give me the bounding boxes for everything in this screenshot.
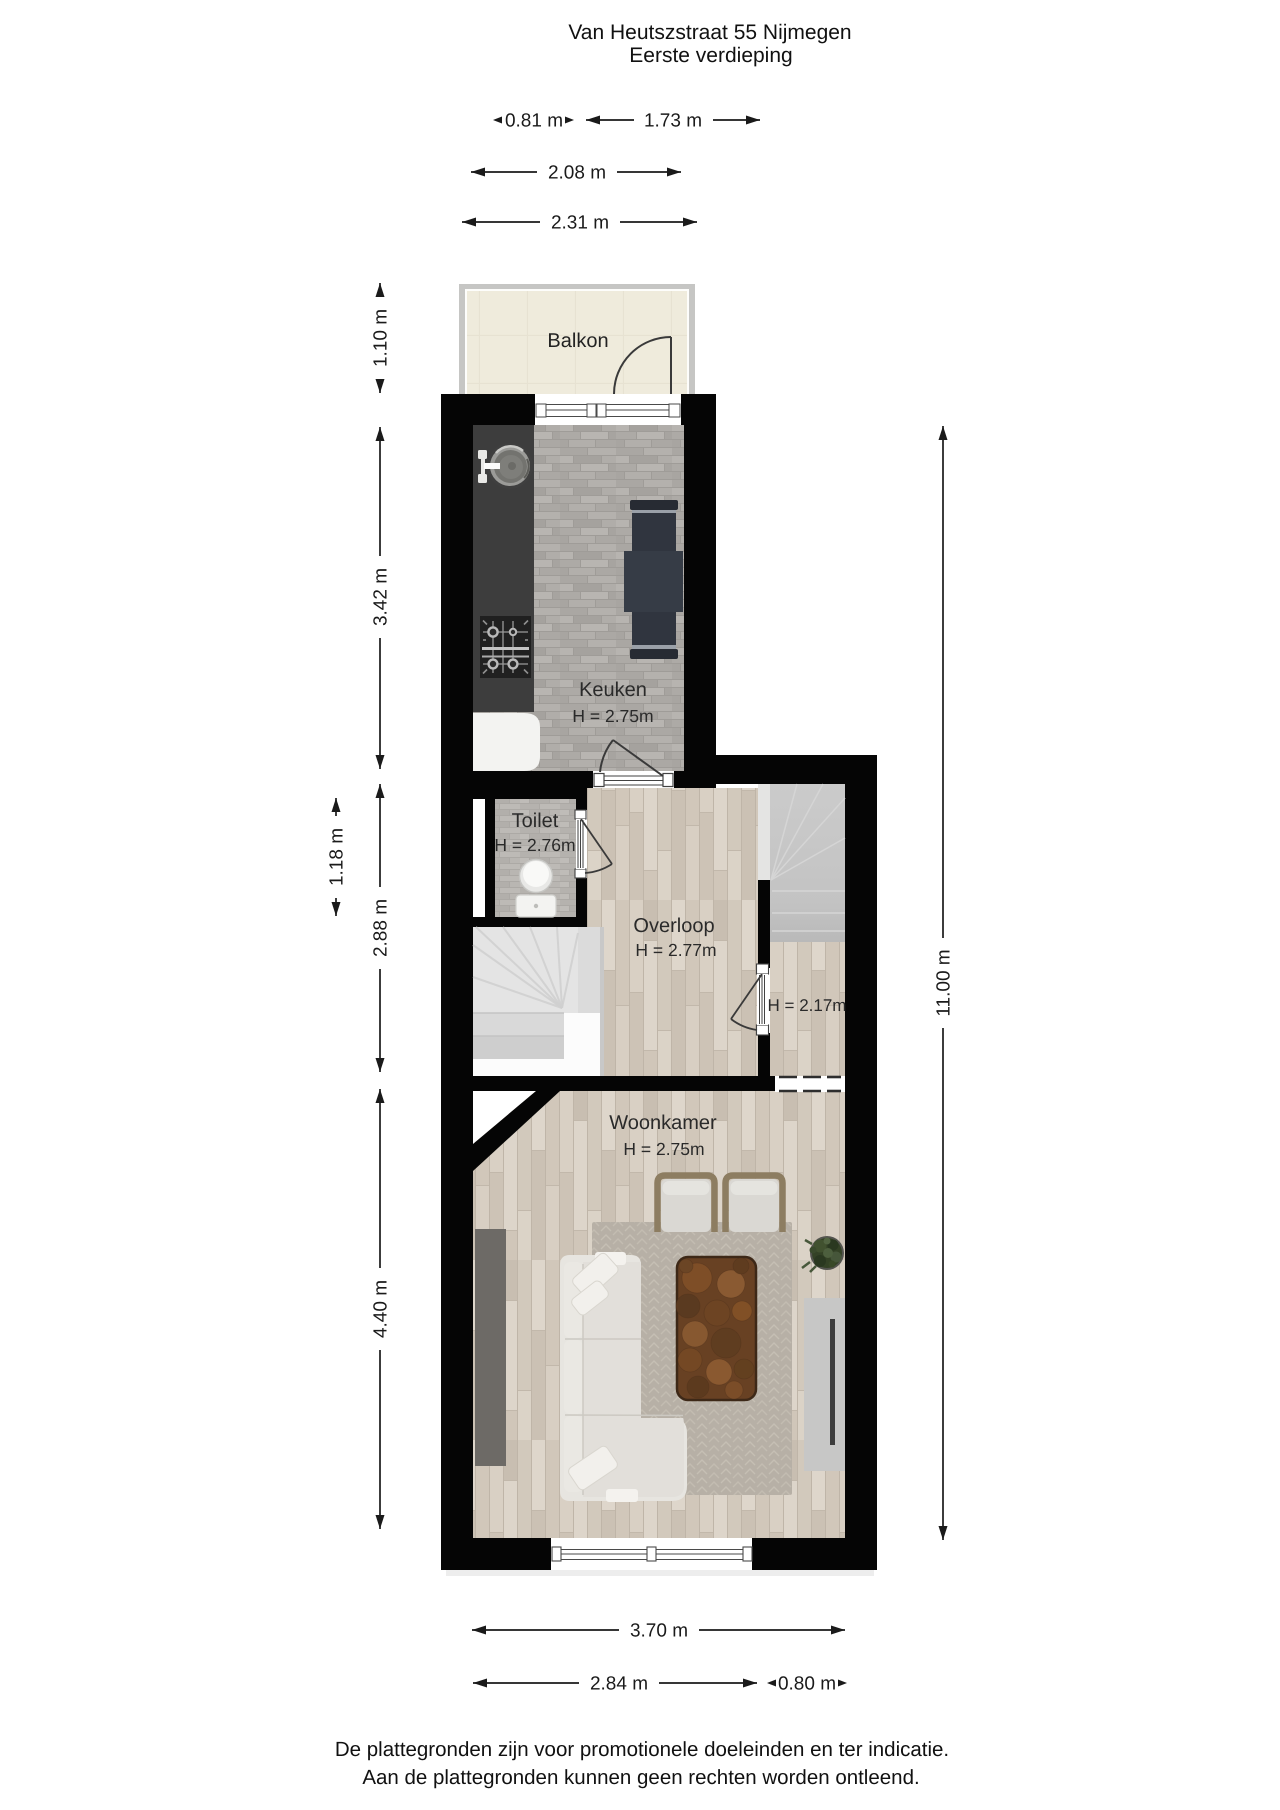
svg-text:0.81 m: 0.81 m: [505, 111, 563, 132]
svg-text:2.08 m: 2.08 m: [548, 163, 606, 184]
svg-text:4.40 m: 4.40 m: [371, 1280, 392, 1338]
svg-text:1.18 m: 1.18 m: [327, 828, 348, 886]
svg-text:2.84 m: 2.84 m: [590, 1674, 648, 1695]
svg-text:H = 2.17m: H = 2.17m: [768, 996, 847, 1015]
svg-text:H = 2.75m: H = 2.75m: [623, 1139, 704, 1159]
svg-text:2.31 m: 2.31 m: [551, 213, 609, 234]
svg-text:0.80 m: 0.80 m: [778, 1674, 836, 1695]
svg-text:11.00 m: 11.00 m: [934, 949, 955, 1016]
svg-text:Aan de plattegronden kunnen ge: Aan de plattegronden kunnen geen rechten…: [362, 1766, 919, 1789]
svg-text:De plattegronden zijn voor pro: De plattegronden zijn voor promotionele …: [335, 1738, 949, 1761]
svg-text:Van Heutszstraat 55 Nijmegen: Van Heutszstraat 55 Nijmegen: [568, 21, 851, 44]
svg-text:H = 2.76m: H = 2.76m: [494, 835, 575, 855]
svg-text:Balkon: Balkon: [547, 330, 608, 352]
svg-text:Overloop: Overloop: [633, 915, 714, 937]
svg-text:H = 2.77m: H = 2.77m: [635, 940, 716, 960]
svg-text:3.70 m: 3.70 m: [630, 1621, 688, 1642]
svg-text:2.88 m: 2.88 m: [371, 899, 392, 957]
svg-text:3.42 m: 3.42 m: [371, 568, 392, 626]
svg-text:Toilet: Toilet: [512, 810, 559, 832]
svg-text:Woonkamer: Woonkamer: [609, 1112, 717, 1134]
svg-text:Keuken: Keuken: [579, 679, 647, 701]
svg-text:Eerste verdieping: Eerste verdieping: [629, 44, 792, 67]
svg-text:1.73 m: 1.73 m: [644, 111, 702, 132]
svg-text:1.10 m: 1.10 m: [371, 309, 392, 367]
svg-text:H = 2.75m: H = 2.75m: [572, 706, 653, 726]
